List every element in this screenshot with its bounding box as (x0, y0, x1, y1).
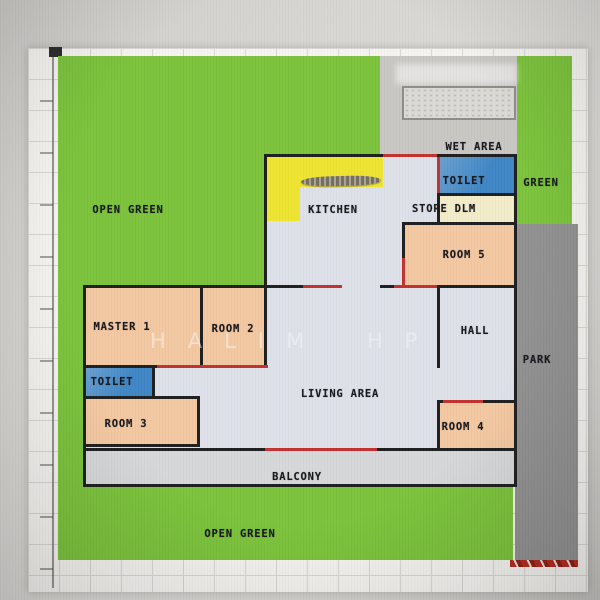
label-store: STORE DLM (412, 204, 476, 215)
kitchen-counter-side (267, 157, 300, 221)
wall-segment (200, 285, 203, 368)
label-kitchen: KITCHEN (308, 205, 358, 216)
label-room-5: ROOM 5 (443, 250, 486, 261)
label-room-4: ROOM 4 (442, 422, 485, 433)
wall-segment (83, 396, 200, 399)
label-open-green-top: OPEN GREEN (92, 205, 163, 216)
ruler-line (52, 50, 54, 588)
wall-segment (83, 444, 200, 447)
door-marker (383, 154, 437, 157)
wall-segment (380, 285, 394, 288)
label-room-3: ROOM 3 (105, 419, 148, 430)
wall-segment (402, 222, 517, 225)
park-edge-hatch (510, 560, 578, 567)
wall-segment (197, 396, 200, 447)
door-marker (443, 400, 483, 403)
label-toilet-top: TOILET (443, 176, 486, 187)
area-open-green-mid (58, 156, 264, 287)
wall-segment (83, 484, 517, 487)
glare-highlight (396, 64, 517, 84)
wall-segment (402, 222, 405, 258)
wall-segment (437, 285, 517, 288)
door-marker (402, 258, 405, 288)
door-marker (437, 157, 440, 193)
label-living-area: LIVING AREA (301, 389, 379, 400)
floor-plan-photo: OPEN GREEN WET AREA TOILET GREEN KITCHEN… (0, 0, 600, 600)
label-park: PARK (523, 355, 552, 366)
wall-segment (264, 154, 383, 157)
label-wet-area: WET AREA (446, 142, 503, 153)
wall-segment (514, 154, 517, 487)
watermark-text: HALIM HP (150, 331, 439, 352)
wall-segment (83, 285, 86, 487)
label-green-side: GREEN (523, 178, 559, 189)
wall-segment (83, 365, 157, 368)
door-marker (265, 448, 377, 451)
area-green-side (517, 56, 572, 224)
door-marker (303, 285, 342, 288)
wall-segment (437, 154, 517, 157)
wall-segment (377, 448, 517, 451)
area-open-green-left-column (58, 287, 85, 487)
label-master-1: MASTER 1 (94, 322, 151, 333)
area-open-green-bottom (58, 487, 513, 560)
wall-segment (437, 193, 517, 196)
wall-segment (152, 365, 155, 399)
label-hall: HALL (461, 326, 490, 337)
sink-fixture-icon (402, 86, 516, 120)
label-open-green-bottom: OPEN GREEN (204, 529, 275, 540)
wall-segment (437, 400, 440, 451)
area-open-green-top (58, 56, 380, 156)
wall-segment (264, 154, 267, 288)
label-balcony: BALCONY (272, 472, 322, 483)
door-marker (157, 365, 268, 368)
wall-segment (83, 448, 265, 451)
wall-segment (83, 285, 303, 288)
wall-segment (483, 400, 517, 403)
wall-segment (264, 285, 267, 368)
area-park (515, 224, 578, 561)
wall-segment (437, 285, 440, 368)
label-toilet-bottom: TOILET (91, 377, 134, 388)
door-marker (394, 285, 437, 288)
